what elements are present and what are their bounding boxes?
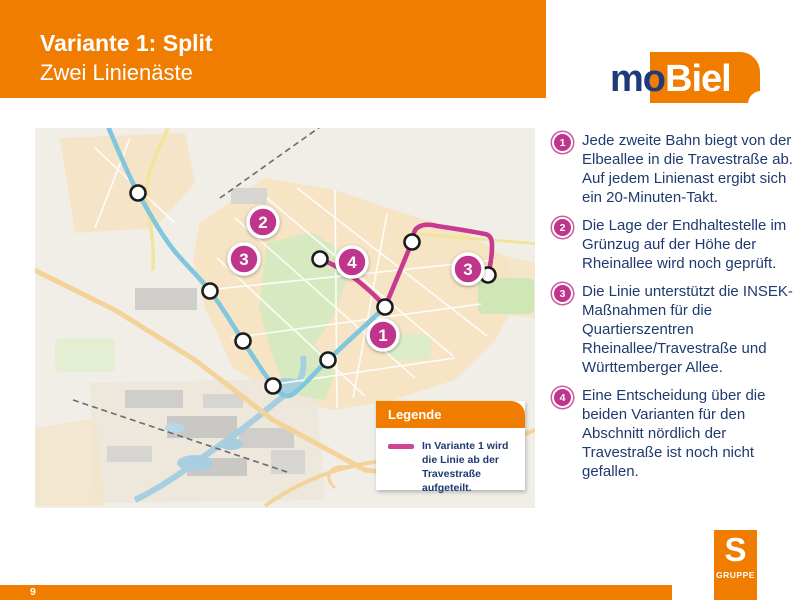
svg-text:3: 3 [239, 250, 248, 269]
map-legend: Legende In Variante 1 wird die Linie ab … [376, 401, 525, 490]
mobiel-logo-mo: mo [610, 58, 665, 100]
map-stop [131, 186, 146, 201]
map-stop [313, 252, 328, 267]
svg-text:3: 3 [463, 260, 472, 279]
page-number: 9 [30, 585, 36, 600]
map-marker-3: 3 [453, 254, 483, 284]
slide: Variante 1: Split Zwei Linienäste moBiel [0, 0, 800, 600]
map-marker-3: 3 [229, 244, 259, 274]
gruppe-s-glyph: S [714, 531, 757, 569]
page-subtitle: Zwei Linienäste [40, 60, 193, 86]
legend-title: Legende [376, 401, 525, 428]
note-text-2: Die Lage der Endhaltestelle im Grünzug a… [582, 216, 798, 273]
note-item-2: 2 Die Lage der Endhaltestelle im Grünzug… [552, 216, 798, 273]
svg-text:2: 2 [258, 213, 267, 232]
note-text-1: Jede zweite Bahn biegt von der Elbeallee… [582, 131, 798, 207]
note-badge-3: 3 [552, 283, 573, 304]
svg-text:4: 4 [347, 253, 357, 272]
note-badge-4: 4 [552, 387, 573, 408]
map-marker-4: 4 [337, 247, 367, 277]
stadtwerke-gruppe-logo: S GRUPPE [714, 530, 757, 600]
footer-bar: 9 [0, 585, 672, 600]
note-badge-2: 2 [552, 217, 573, 238]
notes-column: 1 Jede zweite Bahn biegt von der Elbeall… [552, 131, 798, 490]
mobiel-logo-biel: Biel [665, 58, 731, 100]
svg-text:1: 1 [378, 326, 387, 345]
map-marker-1: 1 [368, 320, 398, 350]
page-title: Variante 1: Split [40, 30, 213, 57]
map-stop [321, 353, 336, 368]
city-map: 23431 Legende In Variante 1 wird die Lin… [35, 128, 535, 508]
note-badge-1: 1 [552, 132, 573, 153]
note-item-4: 4 Eine Entscheidung über die beiden Vari… [552, 386, 798, 481]
map-stop [236, 334, 251, 349]
map-stop [266, 379, 281, 394]
header-banner: Variante 1: Split Zwei Linienäste [0, 0, 546, 98]
map-marker-2: 2 [248, 207, 278, 237]
gruppe-label: GRUPPE [714, 570, 757, 580]
note-item-3: 3 Die Linie unterstützt die INSEK-Maßnah… [552, 282, 798, 377]
note-text-3: Die Linie unterstützt die INSEK-Maßnahme… [582, 282, 798, 377]
map-stop [405, 235, 420, 250]
note-text-4: Eine Entscheidung über die beiden Varian… [582, 386, 798, 481]
map-stop [203, 284, 218, 299]
mobiel-logo-notch [748, 91, 774, 117]
map-stop [378, 300, 393, 315]
legend-entry-text: In Variante 1 wird die Linie ab der Trav… [422, 439, 517, 495]
mobiel-logo: moBiel [600, 45, 765, 110]
note-item-1: 1 Jede zweite Bahn biegt von der Elbeall… [552, 131, 798, 207]
legend-line-sample [388, 444, 414, 449]
